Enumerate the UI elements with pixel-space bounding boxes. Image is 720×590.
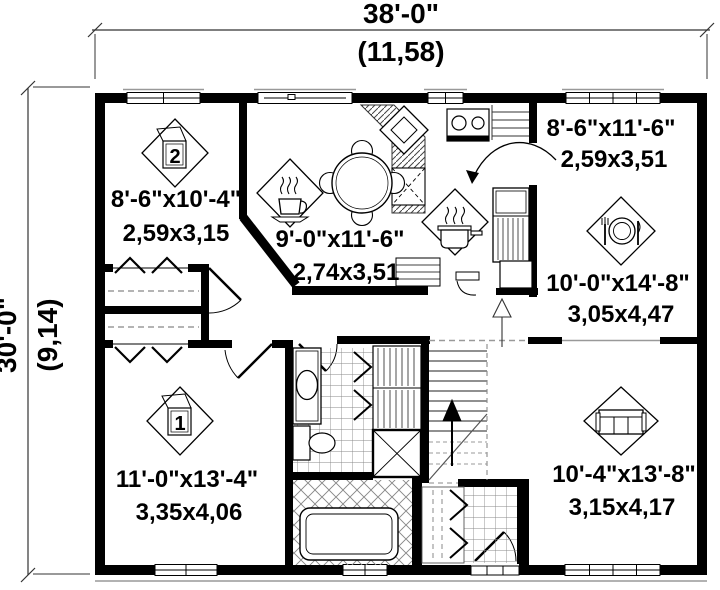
bedroom2-size-imperial: 8'-6"x10'-4" bbox=[111, 186, 241, 213]
living-size-metric: 3,15x4,17 bbox=[569, 494, 676, 521]
baseboard-heater bbox=[396, 258, 440, 286]
door-bedroom1 bbox=[225, 344, 272, 378]
window-dining bbox=[562, 90, 664, 104]
bedroom1-icon: 1 bbox=[147, 387, 213, 455]
plan-width-metric: (11,58) bbox=[357, 36, 444, 67]
floor-plan-drawing: 38'-0" (11,58) 30'-0" (9,14) bbox=[0, 0, 720, 590]
window-top-small bbox=[424, 90, 467, 104]
bedroom1-size-imperial: 11'-0"x13'-4" bbox=[116, 466, 258, 493]
closet-bedroom1 bbox=[108, 327, 199, 362]
plan-height-imperial: 30'-0" bbox=[0, 297, 22, 373]
window-bedroom1 bbox=[155, 565, 217, 576]
stairs bbox=[429, 344, 487, 483]
entry bbox=[422, 487, 517, 563]
bedroom1-number: 1 bbox=[174, 413, 185, 435]
bathtub bbox=[300, 508, 398, 560]
stairs-up-arrow bbox=[443, 400, 461, 466]
dinette-size-imperial: 9'-0"x11'-6" bbox=[276, 226, 405, 253]
dining-size-imperial: 10'-0"x14'-8" bbox=[546, 270, 690, 297]
entry-tile-floor bbox=[464, 487, 517, 563]
refrigerator-pantry bbox=[493, 188, 532, 288]
shower bbox=[373, 430, 421, 477]
cooking-pot-icon bbox=[422, 189, 488, 255]
counter-right bbox=[492, 105, 529, 140]
bedroom2-size-metric: 2,59x3,15 bbox=[123, 220, 230, 247]
bathtub-room bbox=[293, 480, 412, 565]
window-bedroom2 bbox=[123, 90, 204, 104]
kitchen-size-metric: 2,59x3,51 bbox=[561, 146, 668, 173]
bathroom bbox=[293, 346, 421, 477]
dinette-size-metric: 2,74x3,51 bbox=[293, 259, 400, 286]
vanity-sink bbox=[293, 348, 321, 424]
window-kitchen bbox=[254, 90, 356, 104]
floor-plan-canvas: 38'-0" (11,58) 30'-0" (9,14) bbox=[0, 0, 720, 590]
stove bbox=[447, 109, 489, 141]
door-bedroom2 bbox=[209, 268, 241, 313]
bedroom1-size-metric: 3,35x4,06 bbox=[136, 499, 243, 526]
window-living bbox=[565, 565, 660, 576]
place-setting-icon bbox=[587, 197, 655, 265]
flow-up-arrow bbox=[493, 299, 511, 347]
bedroom2-icon: 2 bbox=[142, 119, 208, 187]
kitchen-label-arrow bbox=[466, 143, 556, 184]
entry-closet bbox=[422, 487, 467, 563]
plan-width-imperial: 38'-0" bbox=[363, 0, 439, 29]
dining-size-metric: 3,05x4,47 bbox=[568, 301, 675, 328]
sofa-icon bbox=[584, 387, 658, 455]
closet-bedroom2 bbox=[108, 258, 199, 291]
living-size-imperial: 10'-4"x13'-8" bbox=[552, 461, 696, 488]
window-bathroom bbox=[343, 565, 387, 576]
plan-height-metric: (9,14) bbox=[32, 298, 63, 371]
door-pantry bbox=[456, 272, 479, 295]
bedroom2-number: 2 bbox=[169, 146, 180, 168]
coffee-cup-icon bbox=[257, 159, 323, 227]
kitchen-size-imperial: 8'-6"x11'-6" bbox=[547, 115, 676, 142]
